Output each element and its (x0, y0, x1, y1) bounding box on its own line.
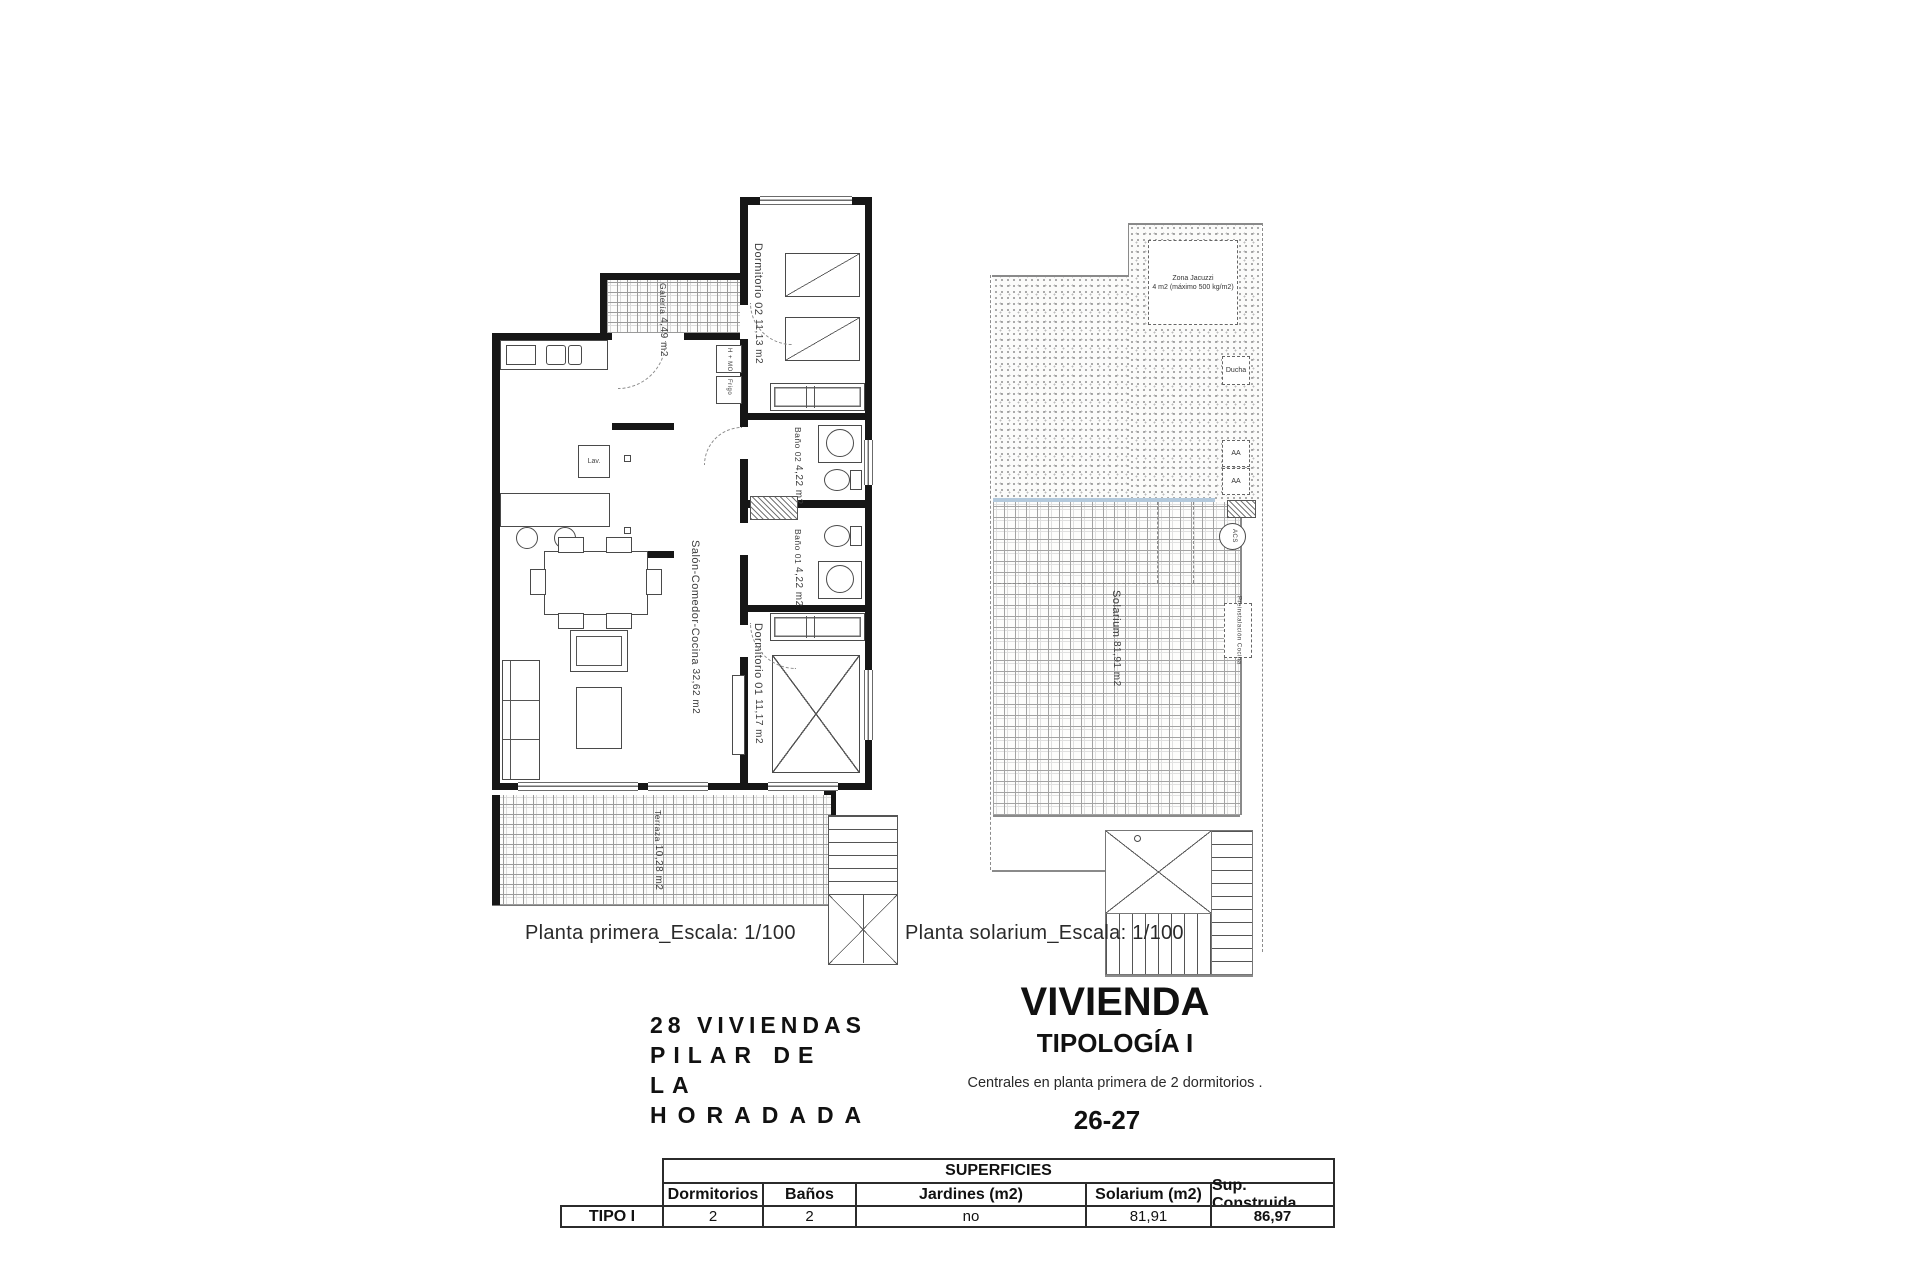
cooktop (506, 345, 536, 365)
oven-microwave-column: H + MO (716, 345, 742, 373)
wardrobe (770, 383, 865, 411)
wardrobe-rail-mark (814, 386, 815, 408)
sofa-back-line (510, 661, 511, 779)
wall (600, 273, 607, 333)
kitchen-sink (546, 345, 566, 365)
first-floor-caption: Planta primera_Escala: 1/100 (525, 922, 796, 945)
fridge: Frigo (716, 376, 742, 404)
galeria-tiled-floor (607, 280, 740, 333)
project-title-line3: HORADADA (650, 1100, 870, 1130)
chair (606, 613, 632, 629)
table-value-solarium: 81,91 (1085, 1205, 1212, 1228)
wardrobe-rail-mark (806, 386, 807, 408)
terrace-door (648, 782, 708, 791)
chair (558, 537, 584, 553)
unit-numbers: 26-27 (1047, 1105, 1167, 1136)
window (864, 670, 873, 740)
water-heater: ACS (1219, 523, 1246, 550)
wall (492, 333, 500, 790)
sofa-cushion-line (503, 700, 539, 701)
wall (748, 605, 865, 612)
chair (606, 537, 632, 553)
wall (748, 413, 865, 420)
kitchen-preinstallation: Preinstalación Cocina (1224, 603, 1252, 658)
first-floor-plan: Galería 4,49 m2 Dormitorio 02 11,13 m2 L… (488, 155, 908, 975)
ac-unit: AA (1222, 440, 1250, 467)
party-wall-dashed-line (1262, 223, 1263, 952)
vent-shaft (750, 496, 798, 520)
chair (558, 613, 584, 629)
jacuzzi-label-line2: 4 m2 (máximo 500 kg/m2) (1152, 283, 1233, 292)
window (518, 782, 638, 791)
terraza-label: Terraza 10,28 m2 (653, 810, 663, 890)
table-value-sup-construida: 86,97 (1210, 1205, 1335, 1228)
shaft-mark (624, 527, 631, 534)
toilet (824, 525, 850, 547)
ac-label: AA (1231, 450, 1240, 457)
typology-title: TIPOLOGÍA I (965, 1028, 1265, 1059)
table-header-sup-construida: Sup. Construida (1210, 1182, 1335, 1207)
stairs (1105, 830, 1253, 975)
solarium-label: Solarium 81,91 m2 (1109, 590, 1123, 780)
boundary-line (993, 815, 1240, 817)
dining-table (544, 551, 648, 615)
table-value-dormitorios: 2 (662, 1205, 764, 1228)
shower-zone: Ducha (1222, 356, 1250, 385)
stair-treads (829, 816, 897, 894)
boundary-line (992, 870, 1105, 872)
wall (492, 795, 500, 905)
preinstallation-label: Preinstalación Cocina (1235, 596, 1242, 665)
solarium-plan: Zona Jacuzzi 4 m2 (máximo 500 kg/m2) Duc… (985, 180, 1280, 990)
kitchen-island (500, 493, 610, 527)
washer-label: Lav. (588, 458, 601, 465)
sofa-cushion-line (503, 739, 539, 740)
wall (612, 423, 674, 430)
boundary-line (1105, 975, 1253, 977)
shaft-mark (624, 455, 631, 462)
project-title-line2: PILAR DE LA (650, 1040, 870, 1100)
layout-guide-line (1193, 502, 1194, 583)
project-title: 28 VIVIENDAS PILAR DE LA HORADADA (650, 1010, 870, 1130)
door-swing-arc (618, 341, 666, 389)
table-row-label: TIPO I (560, 1205, 664, 1228)
window (760, 196, 852, 205)
water-heater-label: ACS (1230, 529, 1237, 547)
window (864, 440, 873, 485)
tv-bench (732, 675, 745, 755)
party-wall-dashed-line (990, 275, 991, 870)
layout-guide-line (993, 583, 1240, 584)
kitchen-sink (568, 345, 582, 365)
washing-machine: Lav. (578, 445, 610, 478)
gravel-zone (993, 277, 1129, 501)
door-opening (740, 625, 748, 657)
wardrobe-rail-mark (814, 616, 815, 638)
galeria-label: Galería 4,49 m2 (658, 283, 668, 331)
sink-bowl (826, 429, 854, 457)
ac-unit: AA (1222, 468, 1250, 495)
stair-roof-lines (1106, 831, 1211, 913)
sofa (502, 660, 540, 780)
wall (600, 273, 740, 280)
chair (530, 569, 546, 595)
table-header-banos: Baños (762, 1182, 857, 1207)
door-opening (740, 523, 748, 555)
shower-label: Ducha (1226, 367, 1246, 374)
plan-sheet: Galería 4,49 m2 Dormitorio 02 11,13 m2 L… (0, 0, 1920, 1280)
project-title-line1: 28 VIVIENDAS (650, 1010, 870, 1040)
stool (516, 527, 538, 549)
bano01-label: Baño 01 4,22 m2 (793, 529, 803, 597)
single-bed (785, 253, 860, 297)
typology-description: Centrales en planta primera de 2 dormito… (950, 1075, 1280, 1091)
toilet-tank (850, 470, 862, 490)
bano02-label: Baño 02 4,22 m2 (793, 427, 803, 495)
fridge-label: Frigo (725, 379, 732, 403)
stair-post (1134, 835, 1141, 842)
jacuzzi-label-line1: Zona Jacuzzi (1172, 274, 1213, 283)
salon-label: Salón-Comedor-Cocina 32,62 m2 (688, 540, 702, 725)
stair-flight-vertical (1211, 831, 1252, 974)
door-opening (612, 333, 684, 340)
surfaces-table: SUPERFICIES Dormitorios Baños Jardines (… (560, 1158, 1335, 1228)
table-value-banos: 2 (762, 1205, 857, 1228)
table-header-dormitorios: Dormitorios (662, 1182, 764, 1207)
door-swing-arc (704, 427, 742, 465)
window (768, 782, 838, 791)
armchair (570, 630, 628, 672)
stair-center-line (863, 894, 864, 963)
oven-label: H + MO (725, 348, 732, 372)
solarium-caption: Planta solarium_Escala: 1/100 (905, 922, 1184, 945)
sink-bowl (826, 565, 854, 593)
wardrobe-rail-mark (806, 616, 807, 638)
chair (646, 569, 662, 595)
stairs (828, 815, 898, 965)
single-bed (785, 317, 860, 361)
table-value-jardines: no (855, 1205, 1087, 1228)
door-opening (740, 305, 748, 339)
dwelling-title: VIVIENDA (965, 980, 1265, 1025)
vent-shaft (1227, 500, 1256, 518)
toilet-tank (850, 526, 862, 546)
table-header-jardines: Jardines (m2) (855, 1182, 1087, 1207)
table-header-solarium: Solarium (m2) (1085, 1182, 1212, 1207)
jacuzzi-zone: Zona Jacuzzi 4 m2 (máximo 500 kg/m2) (1148, 240, 1238, 325)
coffee-table (576, 687, 622, 749)
toilet (824, 469, 850, 491)
ac-label: AA (1231, 478, 1240, 485)
layout-guide-line (1157, 502, 1158, 583)
double-bed (772, 655, 860, 773)
